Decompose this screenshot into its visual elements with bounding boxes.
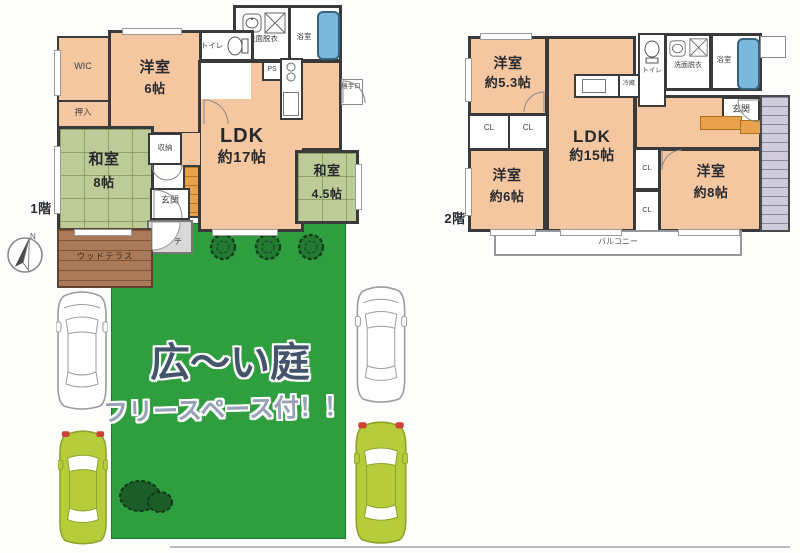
closet-label: CL (638, 164, 656, 172)
porch-1f-label: ポーチ (151, 238, 189, 246)
japanese8-size: 8帖 (72, 176, 136, 190)
pipe-space-label: PS (262, 66, 282, 73)
boundary-line (170, 546, 790, 548)
hallway-1f (201, 63, 251, 99)
closet-label: CL (638, 206, 656, 214)
wic-label: WIC (60, 62, 106, 71)
car-white-icon (354, 281, 408, 405)
western6-1f-name: 洋室 (118, 60, 192, 76)
window (212, 229, 278, 236)
garden-headline: 広〜い庭 (112, 330, 348, 388)
ldk-2f-name: LDK (562, 128, 622, 146)
window-box (760, 36, 786, 58)
window (122, 28, 182, 35)
entrance-step (740, 120, 762, 134)
window (465, 168, 472, 216)
toilet-icon (642, 40, 662, 64)
svg-text:N: N (30, 232, 36, 241)
back-door-label: 勝手口 (336, 84, 366, 91)
stove-icon (283, 61, 300, 83)
japanese8-name: 和室 (68, 152, 140, 168)
toilet-1f-label: トイレ (198, 42, 226, 50)
car-white-icon (56, 286, 108, 412)
entrance-1f-label: 玄関 (154, 196, 186, 205)
window (490, 229, 536, 236)
entrance-step (700, 116, 742, 130)
window (678, 229, 740, 236)
toilet-icon (226, 34, 250, 58)
bathroom-2f-label: 浴室 (712, 56, 736, 64)
garden-subline: フリースペース付！！ (100, 387, 353, 430)
external-staircase (760, 95, 790, 232)
sink-icon (669, 40, 686, 57)
window (54, 146, 61, 214)
floor1-label: 1階 (24, 202, 58, 216)
western6-2f-size: 約6帖 (476, 190, 538, 204)
washing-machine-icon (689, 38, 708, 57)
window (54, 50, 61, 96)
entrance-2f-label: 玄関 (727, 105, 755, 114)
bush-icon (116, 476, 174, 516)
window (560, 229, 622, 236)
toilet-2f-label: トイレ (638, 68, 666, 75)
balcony-label: バルコニー (590, 238, 646, 246)
bathtub-icon (317, 11, 340, 60)
car-green-icon (58, 424, 108, 548)
floor-patch (180, 133, 200, 167)
ldk-1f-size: 約17帖 (208, 150, 276, 166)
car-green-icon (354, 416, 408, 546)
bathtub-icon (737, 38, 760, 90)
wood-terrace-label: ウッドテラス (68, 252, 142, 261)
bathroom-1f-label: 浴室 (291, 33, 317, 41)
compass-icon: N (4, 228, 46, 276)
kitchen-sink-icon (582, 79, 606, 93)
japanese45-name: 和室 (300, 164, 354, 178)
washing-machine-icon (264, 12, 286, 34)
western8-name: 洋室 (686, 164, 736, 179)
window (480, 33, 532, 40)
fridge-label: 冷蔵 (619, 81, 639, 87)
storage-mid-1f-label: 収納 (151, 144, 179, 152)
closet-label: CL (478, 124, 500, 132)
window (74, 229, 132, 236)
western6-2f-name: 洋室 (478, 168, 536, 183)
kitchen-sink-icon (283, 92, 299, 116)
ldk-1f-name: LDK (212, 126, 272, 147)
tree-icon (296, 231, 326, 263)
floor-plan-sheet: 広〜い庭 フリースペース付！！ 1階 N 洗面脱衣 浴室 収納 トイレ WIC … (0, 0, 800, 553)
window (355, 164, 362, 210)
ldk-2f-size: 約15帖 (558, 148, 626, 163)
western53-size: 約5.3帖 (472, 76, 544, 90)
japanese45-size: 4.5帖 (298, 188, 356, 201)
washroom-2f-label: 洗面脱衣 (664, 62, 712, 69)
western6-1f-size: 6帖 (118, 82, 192, 96)
window (465, 58, 472, 102)
oshiire-label: 押入 (62, 108, 104, 117)
western53-name: 洋室 (478, 56, 538, 71)
western8-size: 約8帖 (684, 186, 738, 200)
closet-label: CL (517, 124, 539, 132)
